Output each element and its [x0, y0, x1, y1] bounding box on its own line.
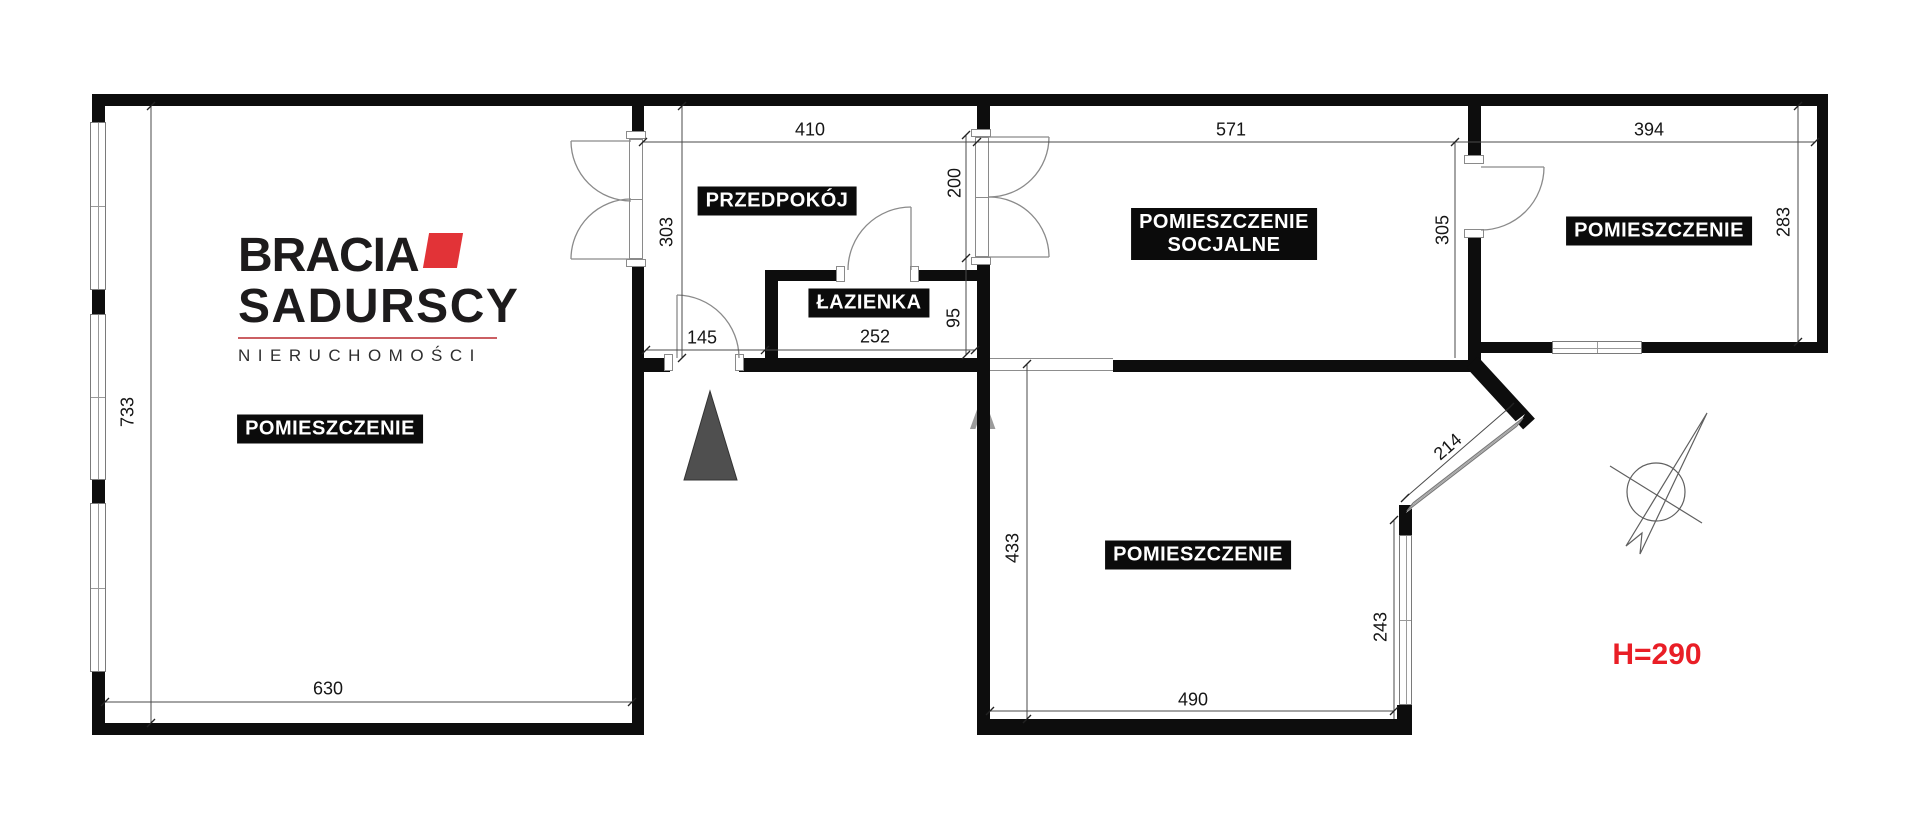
logo-line1: BRACIA: [238, 232, 419, 280]
entry-door-arc: [677, 295, 739, 358]
room-label-social-line2: SOCJALNE: [1139, 234, 1309, 257]
room-label-right: POMIESZCZENIE: [1566, 217, 1752, 246]
entrance-arrow-icon: [684, 391, 737, 480]
dim-hall-depth: 303: [657, 217, 678, 247]
logo-line2: SADURSCY: [238, 283, 519, 331]
window-diagonal: [1406, 414, 1525, 513]
agency-logo: BRACIA SADURSCY NIERUCHOMOŚCI: [238, 232, 519, 366]
room-label-bottom: POMIESZCZENIE: [1105, 541, 1291, 570]
dim-social-width: 571: [1216, 120, 1246, 141]
logo-divider: [238, 337, 497, 339]
floor-plan: A: [0, 0, 1920, 828]
room-label-bath: ŁAZIENKA: [808, 289, 929, 318]
dim-left-depth: 733: [118, 397, 139, 427]
dim-bottom-depth: 433: [1003, 533, 1024, 563]
room-label-left: POMIESZCZENIE: [237, 415, 423, 444]
double-door-arc: [989, 137, 1049, 257]
dim-social-door: 200: [945, 168, 966, 198]
compass-icon: [1610, 413, 1707, 554]
dim-bath-depth: 95: [944, 308, 965, 328]
dim-right-depth: 283: [1774, 207, 1795, 237]
double-door-arc: [571, 141, 631, 259]
dim-bottom-width: 490: [1178, 690, 1208, 711]
dim-left-width: 630: [313, 679, 343, 700]
room-label-social-line1: POMIESZCZENIE: [1139, 211, 1309, 234]
dim-bath-width: 252: [860, 327, 890, 348]
logo-tagline: NIERUCHOMOŚCI: [238, 346, 519, 366]
dim-right-width: 394: [1634, 120, 1664, 141]
dim-social-depth: 305: [1433, 215, 1454, 245]
dim-hall-width: 410: [795, 120, 825, 141]
dim-entry-door: 145: [687, 328, 717, 349]
right-room-door-arc: [1481, 167, 1544, 230]
bathroom-door-arc: [848, 207, 911, 270]
room-label-social: POMIESZCZENIE SOCJALNE: [1131, 208, 1317, 260]
ceiling-height-note: H=290: [1612, 638, 1701, 672]
logo-red-mark: [423, 233, 463, 268]
dim-bottom-window: 243: [1371, 612, 1392, 642]
room-label-hall: PRZEDPOKÓJ: [698, 187, 857, 216]
